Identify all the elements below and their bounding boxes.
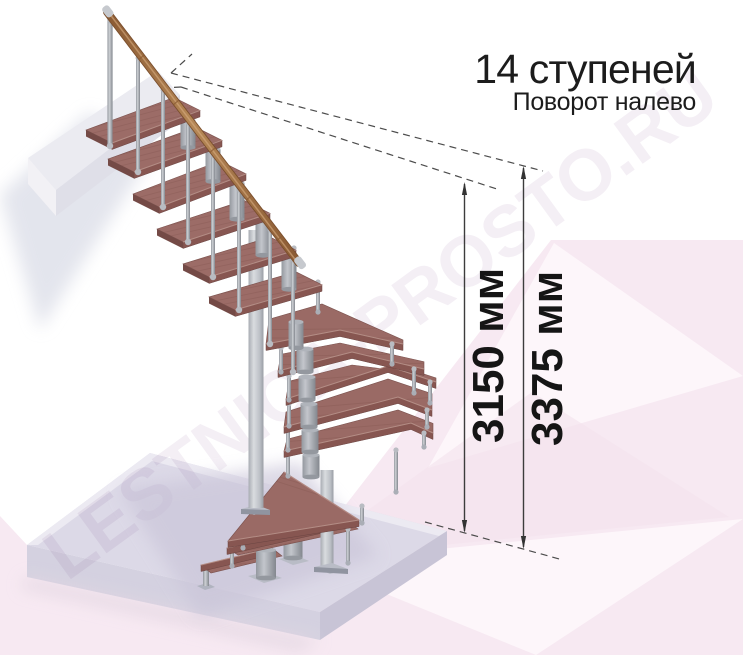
svg-text:14 ступеней: 14 ступеней <box>474 46 696 92</box>
svg-text:Поворот налево: Поворот налево <box>513 88 696 116</box>
svg-text:3150 мм: 3150 мм <box>464 268 513 443</box>
svg-text:3375 мм: 3375 мм <box>523 271 572 446</box>
